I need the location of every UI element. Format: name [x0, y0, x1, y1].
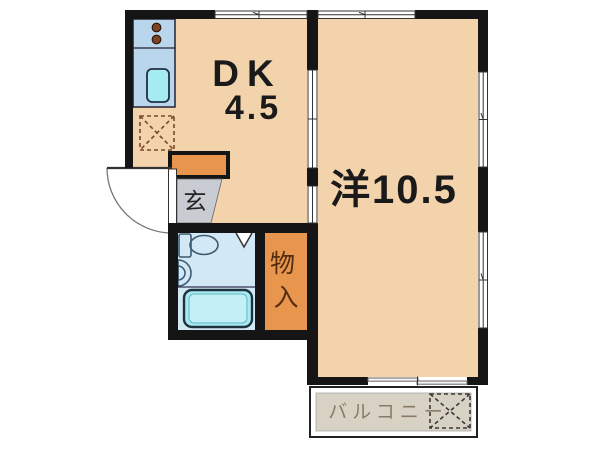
balcony-sliding-door-icon: [368, 377, 467, 386]
western-room-label: 洋10.5: [330, 168, 458, 212]
wall-bottom-right: [467, 377, 488, 385]
wall-bath-bottom: [168, 330, 318, 340]
window-top-dk-icon: [215, 11, 307, 19]
wall-top-right: [415, 10, 488, 19]
shoe-cabinet: [170, 153, 228, 177]
wall-bottom-left: [307, 377, 368, 385]
kitchen-sink-icon: [147, 69, 169, 102]
window-right-upper-icon: [479, 72, 488, 167]
wall-bath-right: [255, 223, 265, 340]
wall-hall-bath: [168, 223, 318, 233]
wall-top-left: [125, 10, 215, 19]
wall-right-top: [478, 10, 488, 72]
wall-left: [125, 10, 133, 168]
wall-partition-low: [307, 223, 318, 385]
balcony: バルコニー: [310, 387, 477, 437]
bathtub-icon: [184, 290, 252, 327]
sliding-door-hall-western-icon: [308, 186, 317, 223]
dk-size-label: 4.5: [225, 89, 281, 127]
entrance-door-icon: [107, 168, 177, 233]
window-right-lower-icon: [479, 232, 488, 328]
dk-label: DK: [212, 53, 281, 94]
sliding-door-dk-western-icon: [308, 70, 317, 168]
floorplan: バルコニー: [0, 0, 600, 450]
wall-bath-left: [168, 223, 178, 340]
storage-closet-floor: [265, 233, 307, 330]
wall-right-mid: [478, 167, 488, 232]
wall-partition-top: [307, 10, 318, 70]
floorplan-canvas: バルコニー: [0, 0, 600, 450]
wall-partition-mid: [307, 168, 318, 186]
window-top-western-icon: [318, 11, 415, 19]
entrance-label: 玄: [184, 188, 207, 214]
wall-right-bottom: [478, 328, 488, 385]
